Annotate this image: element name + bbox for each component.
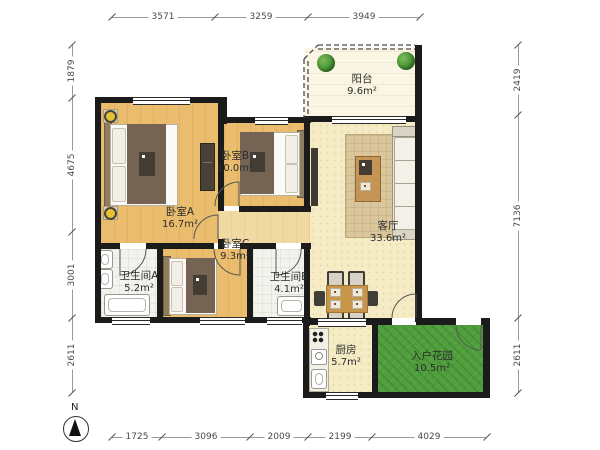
dim-label: 2009 <box>265 432 294 442</box>
dim-label: 2611 <box>513 341 523 370</box>
dim-label: 3571 <box>149 12 178 22</box>
wall <box>95 97 101 323</box>
wall <box>301 243 311 249</box>
dim-label: 3259 <box>247 12 276 22</box>
dim-label: 3001 <box>67 261 77 290</box>
wall <box>415 45 422 122</box>
wall <box>239 206 311 212</box>
bathroom-a-bathtub <box>104 294 150 316</box>
wall <box>218 239 224 249</box>
kitchen-sink <box>311 349 327 365</box>
dim-label: 7136 <box>513 202 523 231</box>
dim-label: 2611 <box>67 341 77 370</box>
bathroom-b-fixture <box>277 296 306 316</box>
balcony-sliding-door <box>332 116 406 124</box>
bedroom-b-throw <box>250 152 265 172</box>
wall <box>415 122 422 322</box>
wall <box>218 103 224 211</box>
dim-label: 3096 <box>192 432 221 442</box>
placemat <box>330 300 341 309</box>
dim-label: 1879 <box>67 57 77 86</box>
bedroom-a-wardrobe <box>200 143 215 191</box>
bedroom-c-pillow <box>171 261 183 286</box>
wall <box>247 243 253 323</box>
window <box>255 117 288 125</box>
sofa-cushion <box>394 183 417 207</box>
window <box>112 317 150 325</box>
wall <box>95 317 112 323</box>
tv-unit <box>311 148 318 206</box>
wall <box>406 116 415 122</box>
window <box>326 392 358 400</box>
wall <box>221 117 255 123</box>
dining-stool <box>367 291 378 306</box>
hallway-floor <box>218 211 310 243</box>
bedroom-b-pillow <box>285 135 298 164</box>
wall <box>416 318 456 325</box>
dim-label: 4675 <box>67 151 77 180</box>
dim-label: 2419 <box>513 66 523 95</box>
placemat <box>330 288 341 297</box>
wall <box>304 243 310 326</box>
wall <box>303 322 309 398</box>
wall <box>372 322 378 398</box>
stove-icon <box>312 331 324 343</box>
sofa-cushion <box>394 206 417 230</box>
wall <box>358 392 490 398</box>
compass-label: N <box>71 402 78 413</box>
window <box>200 317 245 325</box>
sofa-cushion <box>394 137 417 161</box>
sofa-cushion <box>394 160 417 184</box>
north-arrow-icon <box>69 419 81 436</box>
dim-label: 3949 <box>350 12 379 22</box>
wall <box>483 322 490 398</box>
bedroom-a-pillow <box>112 166 126 202</box>
dim-label: 4029 <box>415 432 444 442</box>
bedroom-c-pillow <box>171 287 183 312</box>
wall <box>304 116 332 122</box>
plant-icon <box>397 52 415 70</box>
bedroom-a-pillow <box>112 128 126 164</box>
window <box>267 317 302 325</box>
dim-label: 2199 <box>326 432 355 442</box>
kitchen-appliance <box>311 369 327 389</box>
bedroom-b-pillow <box>285 164 298 193</box>
floor-plan: 阳台 9.6m² 卧室B 10.0m² 卧室A 16.7m² 卧室C 9.3m²… <box>0 0 600 450</box>
lamp-icon <box>104 110 117 123</box>
window <box>133 97 190 105</box>
bedroom-a-throw <box>139 152 155 176</box>
lamp-icon <box>104 207 117 220</box>
wall <box>240 243 276 249</box>
entry-garden-floor <box>378 325 483 392</box>
placemat <box>352 300 363 309</box>
dining-stool <box>314 291 325 306</box>
dim-label: 1725 <box>123 432 152 442</box>
placemat <box>352 288 363 297</box>
bedroom-c-throw <box>193 275 207 295</box>
wall <box>157 243 163 323</box>
wall <box>303 392 326 398</box>
wall <box>95 243 120 249</box>
wall <box>366 318 392 325</box>
coffee-table-tray <box>360 182 371 191</box>
wall <box>304 117 310 212</box>
kitchen-sliding-door <box>318 318 366 327</box>
coffee-table-item <box>359 160 372 175</box>
plant-icon <box>317 54 335 72</box>
